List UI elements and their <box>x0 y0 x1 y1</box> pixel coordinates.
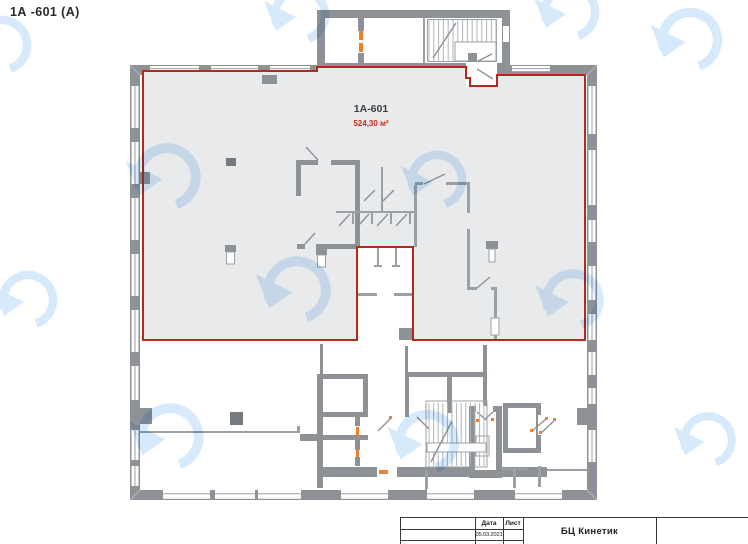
plan-header-title: 1А -601 (А) <box>10 5 80 19</box>
floor-plan-page: 1А-601 524,30 м² 1А -601 (А) Дата Лист 0… <box>0 0 748 544</box>
column <box>226 158 236 166</box>
watermark-logo-icon <box>0 268 60 332</box>
unit-name-label: 1А-601 <box>354 103 389 115</box>
title-block-divider <box>401 529 523 530</box>
lower-floor-walls <box>140 344 590 490</box>
title-block: Дата Лист 05.03.2021 БЦ Кинетик <box>400 517 748 544</box>
watermark-logo-icon <box>534 0 602 44</box>
watermark-logo-icon <box>650 5 725 75</box>
sheet-column-header: Лист <box>503 518 523 529</box>
column <box>230 412 243 425</box>
date-value: 05.03.2021 <box>475 529 503 540</box>
title-block-divider <box>401 540 523 541</box>
floor-plan-canvas: 1А-601 524,30 м² <box>0 0 748 544</box>
project-name: БЦ Кинетик <box>523 518 656 544</box>
fire-door-marker <box>359 43 363 52</box>
title-block-divider <box>656 518 657 544</box>
fire-door-marker <box>359 31 363 40</box>
watermark-logo-icon <box>0 13 34 77</box>
unit-area-label: 524,30 м² <box>353 119 389 128</box>
date-column-header: Дата <box>475 518 503 529</box>
watermark-logo-icon <box>674 410 739 471</box>
